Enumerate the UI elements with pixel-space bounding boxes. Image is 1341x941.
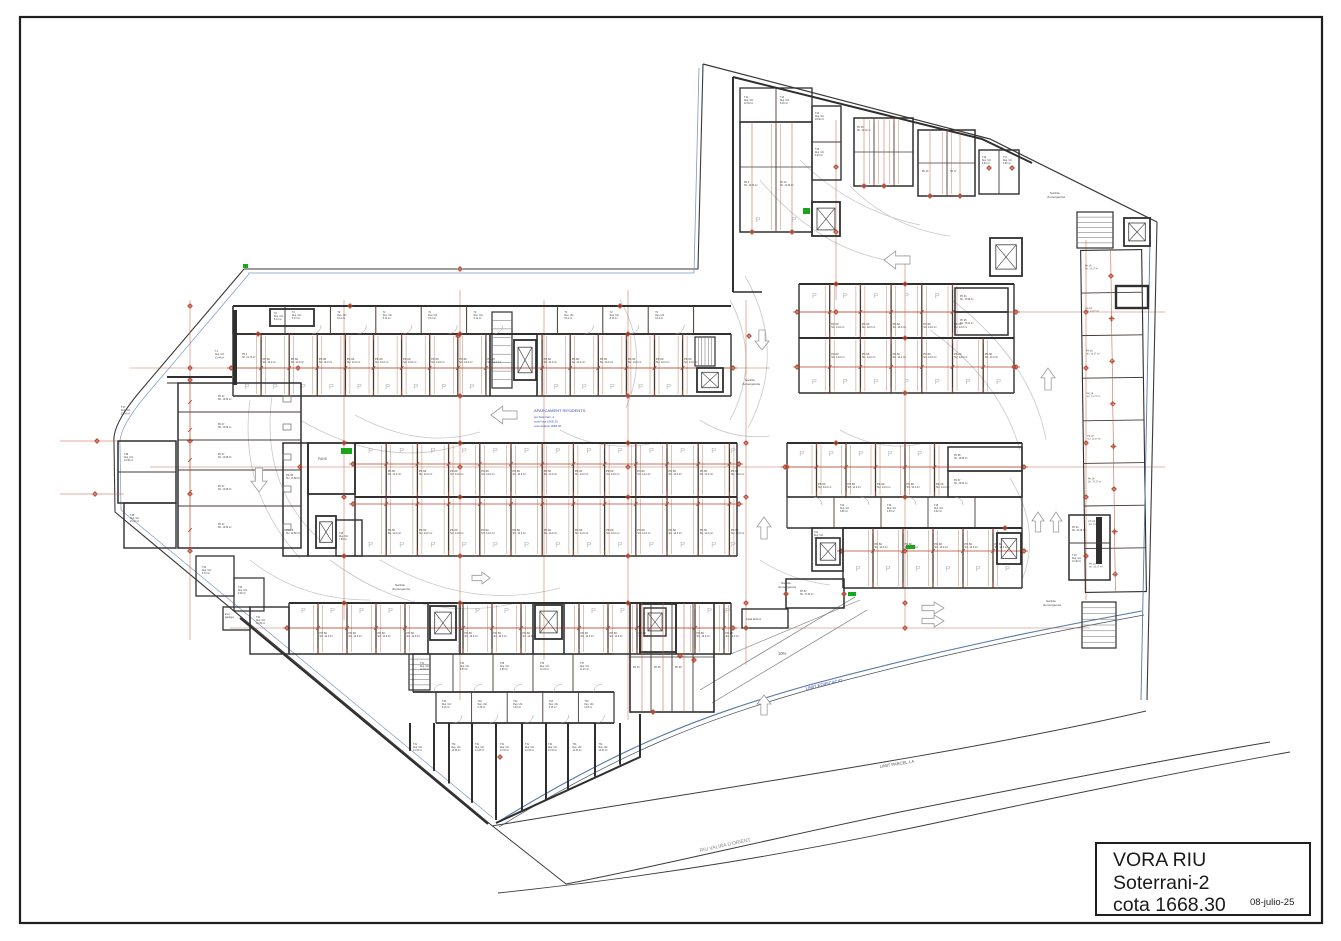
svg-text:trast.: trast. <box>225 613 230 616</box>
svg-text:P: P <box>554 382 559 391</box>
svg-text:8.14 m²: 8.14 m² <box>428 317 436 320</box>
svg-text:Rep. Util.: Rep. Util. <box>610 314 620 317</box>
svg-text:SU. 14.0 m²: SU. 14.0 m² <box>697 635 711 638</box>
svg-text:SU. 14.0 m²: SU. 14.0 m² <box>513 532 527 535</box>
svg-text:Rep. Util.: Rep. Util. <box>548 746 558 749</box>
svg-text:P: P <box>888 449 893 458</box>
svg-text:8.83 m²: 8.83 m² <box>460 668 468 671</box>
svg-text:P: P <box>462 540 467 549</box>
svg-text:SU. 21.73 m²: SU. 21.73 m² <box>242 356 256 359</box>
svg-text:SU. 12.80 m²: SU. 12.80 m² <box>286 532 300 535</box>
svg-text:PK.47: PK.47 <box>218 485 225 488</box>
svg-text:SU. 14.0 m²: SU. 14.0 m² <box>637 532 651 535</box>
svg-text:P: P <box>582 382 587 391</box>
svg-text:P: P <box>618 540 623 549</box>
svg-text:Rep. Util.: Rep. Util. <box>599 746 609 749</box>
svg-text:SU. 14.0 m²: SU. 14.0 m² <box>544 473 558 476</box>
svg-text:T31: T31 <box>548 743 553 746</box>
svg-text:SU. 13.08 m²: SU. 13.08 m² <box>218 426 232 429</box>
svg-text:P: P <box>680 446 685 455</box>
svg-text:PK.18: PK.18 <box>1086 349 1093 352</box>
svg-text:T36: T36 <box>540 662 545 665</box>
svg-text:18.60 m²: 18.60 m² <box>815 118 824 121</box>
svg-text:T44: T44 <box>202 566 207 569</box>
svg-text:SU. 14.0 m²: SU. 14.0 m² <box>656 361 670 364</box>
svg-text:Rep. Util.: Rep. Util. <box>780 99 790 102</box>
svg-text:8.14 m²: 8.14 m² <box>474 317 482 320</box>
svg-text:T31: T31 <box>452 743 457 746</box>
svg-text:SU. 14.0 m²: SU. 14.0 m² <box>403 361 417 364</box>
svg-text:Rep. Util.: Rep. Util. <box>549 703 559 706</box>
svg-text:SU. 14.0 m²: SU. 14.0 m² <box>481 532 495 535</box>
svg-text:SU. 14.0 m²: SU. 14.0 m² <box>877 486 891 489</box>
svg-text:Rep. Util.: Rep. Util. <box>525 746 535 749</box>
svg-text:T40: T40 <box>460 662 465 665</box>
svg-text:T33: T33 <box>584 700 589 703</box>
svg-text:T19: T19 <box>887 504 892 507</box>
svg-text:P: P <box>329 382 334 391</box>
svg-text:SU. 14.0 m²: SU. 14.0 m² <box>481 473 495 476</box>
svg-text:P: P <box>504 606 509 615</box>
svg-text:11.23 m²: 11.23 m² <box>580 668 589 671</box>
svg-text:T31: T31 <box>500 743 505 746</box>
svg-text:PK.18: PK.18 <box>1088 477 1095 480</box>
svg-text:SU. 17.32 m²: SU. 17.32 m² <box>800 593 814 596</box>
svg-text:SU. 13.17 m²: SU. 13.17 m² <box>1085 267 1099 270</box>
svg-text:8.14 m²: 8.14 m² <box>337 317 345 320</box>
svg-text:Rep. Util.: Rep. Util. <box>500 746 510 749</box>
svg-text:SU. 13.08 m²: SU. 13.08 m² <box>218 456 232 459</box>
svg-text:8.14 m²: 8.14 m² <box>655 317 663 320</box>
svg-text:Rep. Util.: Rep. Util. <box>428 314 438 317</box>
svg-text:Rep. Util.: Rep. Util. <box>215 353 225 356</box>
svg-text:PK.15: PK.15 <box>857 126 864 129</box>
svg-text:P: P <box>649 540 654 549</box>
svg-text:P: P <box>829 449 834 458</box>
svg-text:P: P <box>843 291 848 300</box>
svg-text:PK.1: PK.1 <box>242 353 248 356</box>
svg-text:T.19: T.19 <box>1072 554 1077 557</box>
svg-text:PK.18: PK.18 <box>1088 520 1095 523</box>
svg-text:P: P <box>843 377 848 386</box>
svg-text:P: P <box>755 215 760 224</box>
svg-text:T21: T21 <box>814 531 819 534</box>
svg-text:P: P <box>996 377 1001 386</box>
svg-text:P: P <box>858 449 863 458</box>
svg-text:Rep. Util.: Rep. Util. <box>452 746 462 749</box>
svg-text:SU. 15.96 m²: SU. 15.96 m² <box>960 298 974 301</box>
svg-text:PK.47: PK.47 <box>218 423 225 426</box>
svg-text:Rep. Util.: Rep. Util. <box>475 746 485 749</box>
svg-text:P: P <box>711 446 716 455</box>
svg-text:APARCAMENT RESIDENTS: APARCAMENT RESIDENTS <box>534 408 586 413</box>
svg-text:d'emergència: d'emergència <box>1043 603 1061 607</box>
svg-text:8.14 m²: 8.14 m² <box>383 317 391 320</box>
svg-text:SU. 14.0 m²: SU. 14.0 m² <box>818 486 832 489</box>
svg-text:P: P <box>430 446 435 455</box>
svg-text:PK.18: PK.18 <box>1087 435 1094 438</box>
svg-text:8.14 m²: 8.14 m² <box>292 317 300 320</box>
svg-text:14.33 m²: 14.33 m² <box>525 749 534 752</box>
svg-text:P: P <box>618 446 623 455</box>
svg-text:6.66 m²: 6.66 m² <box>1003 162 1011 165</box>
svg-text:14.33 m²: 14.33 m² <box>573 749 582 752</box>
svg-text:P: P <box>330 606 335 615</box>
svg-text:SU. 14.0 m²: SU. 14.0 m² <box>450 473 464 476</box>
svg-text:P: P <box>368 446 373 455</box>
svg-text:P: P <box>975 564 980 573</box>
svg-text:14.33 m²: 14.33 m² <box>452 749 461 752</box>
svg-text:T48: T48 <box>124 453 129 456</box>
svg-text:T31: T31 <box>413 743 418 746</box>
svg-text:P: P <box>475 606 480 615</box>
svg-text:SU. 14.0 m²: SU. 14.0 m² <box>610 635 624 638</box>
svg-text:Rep. Util.: Rep. Util. <box>339 535 349 538</box>
svg-text:PK.17: PK.17 <box>950 170 957 173</box>
svg-text:Rep. Util.: Rep. Util. <box>815 151 825 154</box>
svg-text:PK.67: PK.67 <box>954 479 961 482</box>
svg-text:P: P <box>945 564 950 573</box>
svg-text:6.16 m²: 6.16 m² <box>513 706 521 709</box>
svg-text:SU. 14.0 m²: SU. 14.0 m² <box>494 635 508 638</box>
svg-text:SU. 15.02 m²: SU. 15.02 m² <box>960 322 974 325</box>
svg-text:SU. 14.0 m²: SU. 14.0 m² <box>419 473 433 476</box>
svg-text:6.16 m²: 6.16 m² <box>584 706 592 709</box>
svg-text:SU. 14.0 m²: SU. 14.0 m² <box>637 473 651 476</box>
svg-text:14.33 m²: 14.33 m² <box>475 749 484 752</box>
svg-text:PK.66: PK.66 <box>954 454 961 457</box>
svg-text:SU. 14.0 m²: SU. 14.0 m² <box>319 361 333 364</box>
svg-text:PK.34: PK.34 <box>633 666 640 669</box>
svg-text:PK.18: PK.18 <box>1089 562 1096 565</box>
svg-text:6.88 m²: 6.88 m² <box>840 510 848 513</box>
svg-text:SU. 13.17 m²: SU. 13.17 m² <box>1088 480 1102 483</box>
svg-text:SU. 14.0 m²: SU. 14.0 m² <box>606 532 620 535</box>
svg-text:P: P <box>855 564 860 573</box>
svg-text:T20: T20 <box>840 504 845 507</box>
svg-text:T47: T47 <box>121 406 126 409</box>
svg-text:T15: T15 <box>815 148 820 151</box>
svg-text:SU. 14.0 m²: SU. 14.0 m² <box>731 473 745 476</box>
svg-text:P: P <box>915 564 920 573</box>
svg-text:SU. 14.0 m²: SU. 14.0 m² <box>628 361 642 364</box>
svg-text:6.88 m²: 6.88 m² <box>500 668 508 671</box>
svg-text:P: P <box>917 449 922 458</box>
svg-text:P: P <box>799 449 804 458</box>
svg-text:10.49 m²: 10.49 m² <box>256 622 265 625</box>
svg-text:Rep. Util.: Rep. Util. <box>256 619 266 622</box>
svg-text:d'emergència: d'emergència <box>778 585 796 589</box>
svg-text:cota 1668.30: cota 1668.30 <box>1113 894 1226 916</box>
svg-text:9.48 m²: 9.48 m² <box>238 592 246 595</box>
svg-text:Rep. Util.: Rep. Util. <box>1003 159 1013 162</box>
svg-text:Rep. Util.: Rep. Util. <box>540 665 550 668</box>
svg-text:PK.18: PK.18 <box>1085 307 1092 310</box>
svg-text:T31: T31 <box>525 743 530 746</box>
svg-text:P: P <box>524 446 529 455</box>
svg-text:T42: T42 <box>256 616 261 619</box>
svg-text:Rep. Util.: Rep. Util. <box>460 665 470 668</box>
svg-text:P: P <box>586 540 591 549</box>
svg-text:SU. 13.08 m²: SU. 13.08 m² <box>218 526 232 529</box>
svg-text:13.48 m²: 13.48 m² <box>1072 560 1081 563</box>
svg-text:P: P <box>591 606 596 615</box>
svg-text:P: P <box>441 382 446 391</box>
svg-text:6.16 m²: 6.16 m² <box>478 706 486 709</box>
svg-text:Rep. Util.: Rep. Util. <box>564 314 574 317</box>
svg-text:Rep. Util.: Rep. Util. <box>238 589 248 592</box>
svg-text:SU. 14.0 m²: SU. 14.0 m² <box>347 361 361 364</box>
svg-text:Rep. Util.: Rep. Util. <box>815 115 825 118</box>
svg-text:8.49 m²: 8.49 m² <box>780 102 788 105</box>
svg-text:P: P <box>649 446 654 455</box>
svg-text:cota acabat 1668.30: cota acabat 1668.30 <box>534 424 562 428</box>
svg-text:PANS: PANS <box>318 457 328 461</box>
svg-text:12.23 m²: 12.23 m² <box>540 668 549 671</box>
svg-text:14.33 m²: 14.33 m² <box>599 749 608 752</box>
svg-text:P: P <box>555 540 560 549</box>
svg-text:P: P <box>430 540 435 549</box>
svg-text:T41: T41 <box>420 662 425 665</box>
svg-text:SU. 13.88 m²: SU. 13.88 m² <box>286 477 300 480</box>
svg-text:SU. 14.0 m²: SU. 14.0 m² <box>923 326 937 329</box>
svg-text:SU. 13.11 m²: SU. 13.11 m² <box>857 129 871 132</box>
svg-text:Rep. Util.: Rep. Util. <box>442 703 452 706</box>
svg-text:SU. 14.0 m²: SU. 14.0 m² <box>419 532 433 535</box>
svg-text:Rep. Util.: Rep. Util. <box>121 409 131 412</box>
svg-text:P: P <box>725 606 730 615</box>
svg-text:14.33 m²: 14.33 m² <box>413 749 422 752</box>
svg-text:8.14 m²: 8.14 m² <box>564 317 572 320</box>
svg-text:pis Soterrani -2: pis Soterrani -2 <box>534 415 555 419</box>
svg-text:PK.52: PK.52 <box>800 590 807 593</box>
svg-text:T31: T31 <box>475 743 480 746</box>
svg-text:Rep. Util.: Rep. Util. <box>274 315 284 318</box>
svg-text:P: P <box>680 540 685 549</box>
svg-text:SU. 14.0 m²: SU. 14.0 m² <box>407 635 421 638</box>
svg-text:8.02 m²: 8.02 m² <box>934 510 942 513</box>
svg-text:Rep. Util.: Rep. Util. <box>337 314 347 317</box>
svg-text:20.04 m²: 20.04 m² <box>121 413 130 416</box>
svg-text:SU. 14.0 m²: SU. 14.0 m² <box>575 473 589 476</box>
svg-text:SU. 14.0 m²: SU. 14.0 m² <box>544 361 558 364</box>
svg-text:SU. 14.0 m²: SU. 14.0 m² <box>954 326 968 329</box>
svg-text:SU. 14.0 m²: SU. 14.0 m² <box>893 356 907 359</box>
svg-text:SU. 14.0 m²: SU. 14.0 m² <box>731 532 745 535</box>
svg-text:8.14 m²: 8.14 m² <box>610 317 618 320</box>
svg-text:Rep. Util.: Rep. Util. <box>934 507 944 510</box>
svg-text:SU. 14.0 m²: SU. 14.0 m² <box>831 356 845 359</box>
svg-text:13.38 m²: 13.38 m² <box>124 459 133 462</box>
svg-text:Rep. Util.: Rep. Util. <box>124 456 134 459</box>
svg-text:P: P <box>711 540 716 549</box>
svg-text:SU. 13.17 m²: SU. 13.17 m² <box>1089 565 1103 568</box>
svg-text:SU. 15.02 m²: SU. 15.02 m² <box>954 482 968 485</box>
svg-text:SU. 14.0 m²: SU. 14.0 m² <box>378 635 392 638</box>
svg-text:SU. 14.0 m²: SU. 14.0 m² <box>572 361 586 364</box>
svg-text:P: P <box>610 382 615 391</box>
svg-text:SU. 14.0 m²: SU. 14.0 m² <box>388 532 402 535</box>
svg-text:P: P <box>357 382 362 391</box>
svg-text:Rep. Util.: Rep. Util. <box>420 665 430 668</box>
svg-text:P: P <box>873 291 878 300</box>
svg-text:14.33 m²: 14.33 m² <box>548 749 557 752</box>
svg-text:Rep. Util.: Rep. Util. <box>130 517 140 520</box>
svg-text:Rep. Util.: Rep. Util. <box>474 314 484 317</box>
svg-text:VORA RIU: VORA RIU <box>1113 849 1206 871</box>
svg-text:P: P <box>399 446 404 455</box>
svg-text:T31: T31 <box>599 743 604 746</box>
svg-text:SU. 14.0 m²: SU. 14.0 m² <box>700 532 714 535</box>
svg-text:SU. 14.0 m²: SU. 14.0 m² <box>669 473 683 476</box>
svg-text:PK.18: PK.18 <box>1085 264 1092 267</box>
svg-text:PK.47: PK.47 <box>218 523 225 526</box>
svg-text:SU. 13.22 m²: SU. 13.22 m² <box>744 184 758 187</box>
svg-text:P: P <box>301 606 306 615</box>
svg-text:SU. 14.0 m²: SU. 14.0 m² <box>669 532 683 535</box>
svg-text:PK.9: PK.9 <box>744 181 750 184</box>
svg-text:10%: 10% <box>778 651 787 656</box>
svg-text:Rep. Util.: Rep. Util. <box>744 99 754 102</box>
svg-text:Rep. Util.: Rep. Util. <box>584 703 594 706</box>
svg-text:23.44 m²: 23.44 m² <box>215 357 224 360</box>
svg-text:P: P <box>904 291 909 300</box>
svg-text:T14: T14 <box>815 112 820 115</box>
svg-text:P: P <box>638 382 643 391</box>
svg-text:P: P <box>469 382 474 391</box>
svg-text:SU. 13.17 m²: SU. 13.17 m² <box>1087 438 1101 441</box>
svg-text:SU. 14.0 m²: SU. 14.0 m² <box>954 356 968 359</box>
svg-text:6.16 m²: 6.16 m² <box>549 706 557 709</box>
svg-text:Rep. Util.: Rep. Util. <box>513 703 523 706</box>
svg-text:PK.05: PK.05 <box>960 319 967 322</box>
svg-text:instal·lacions: instal·lacions <box>746 617 762 621</box>
svg-text:14.33 m²: 14.33 m² <box>500 749 509 752</box>
svg-text:P: P <box>812 377 817 386</box>
svg-text:Rep. Util.: Rep. Util. <box>478 703 488 706</box>
svg-text:P: P <box>873 377 878 386</box>
svg-text:SU. 14.0 m²: SU. 14.0 m² <box>600 361 614 364</box>
svg-text:Rep. Util.: Rep. Util. <box>413 746 423 749</box>
svg-text:T33: T33 <box>513 700 518 703</box>
svg-text:T43: T43 <box>238 586 243 589</box>
svg-text:P: P <box>368 540 373 549</box>
svg-text:23.41 m²: 23.41 m² <box>130 520 139 523</box>
svg-text:P: P <box>965 377 970 386</box>
svg-text:P: P <box>462 446 467 455</box>
svg-text:SU. 14.0 m²: SU. 14.0 m² <box>893 326 907 329</box>
svg-text:T45: T45 <box>130 514 135 517</box>
svg-text:P: P <box>1005 564 1010 573</box>
svg-text:SU. 14.0 m²: SU. 14.0 m² <box>907 486 921 489</box>
svg-text:P: P <box>524 540 529 549</box>
svg-text:7.32 m²: 7.32 m² <box>814 537 822 540</box>
svg-text:Rep. Util.: Rep. Util. <box>814 534 824 537</box>
svg-text:6.16 m²: 6.16 m² <box>442 706 450 709</box>
svg-text:T18: T18 <box>934 504 939 507</box>
svg-text:08-julio-25: 08-julio-25 <box>1250 897 1294 908</box>
svg-text:T16: T16 <box>982 156 987 159</box>
svg-text:SU. 14.0 m²: SU. 14.0 m² <box>431 361 445 364</box>
svg-text:Rep. Util.: Rep. Util. <box>573 746 583 749</box>
svg-text:d'emergència: d'emergència <box>392 587 410 591</box>
svg-text:Rep. Util.: Rep. Util. <box>840 507 850 510</box>
svg-text:SU. 14.0 m²: SU. 14.0 m² <box>581 635 595 638</box>
svg-text:Rep. Util.: Rep. Util. <box>655 314 665 317</box>
svg-text:7.60 m²: 7.60 m² <box>339 538 347 541</box>
svg-text:SU. 14.0 m²: SU. 14.0 m² <box>459 361 473 364</box>
svg-text:SU. 14.0 m²: SU. 14.0 m² <box>726 635 740 638</box>
svg-text:Rep. Util.: Rep. Util. <box>500 665 510 668</box>
svg-text:SU. 14.0 m²: SU. 14.0 m² <box>291 361 305 364</box>
svg-text:PK.16: PK.16 <box>922 170 929 173</box>
svg-text:SU. 14.0 m²: SU. 14.0 m² <box>544 532 558 535</box>
svg-text:PK.35: PK.35 <box>654 666 661 669</box>
svg-text:SU. 14.0 m²: SU. 14.0 m² <box>575 532 589 535</box>
svg-text:P: P <box>493 446 498 455</box>
svg-text:P: P <box>399 540 404 549</box>
svg-text:PK.24: PK.24 <box>1072 526 1079 529</box>
svg-text:22.62 m²: 22.62 m² <box>420 668 429 671</box>
svg-text:P: P <box>666 382 671 391</box>
svg-text:SU. 13.17 m²: SU. 13.17 m² <box>1086 352 1100 355</box>
svg-text:Rep. Util.: Rep. Util. <box>580 665 590 668</box>
svg-text:P: P <box>385 382 390 391</box>
svg-text:SU. 14.0 m²: SU. 14.0 m² <box>831 326 845 329</box>
svg-text:P: P <box>555 446 560 455</box>
svg-text:PK.10: PK.10 <box>780 181 787 184</box>
svg-text:SU. 20.25 m²: SU. 20.25 m² <box>1072 529 1086 532</box>
svg-text:Rep. Util.: Rep. Util. <box>982 159 992 162</box>
svg-text:P: P <box>493 540 498 549</box>
svg-text:Rep. Util.: Rep. Util. <box>1072 557 1082 560</box>
svg-text:T33: T33 <box>442 700 447 703</box>
svg-text:P: P <box>885 564 890 573</box>
svg-text:SU. 14.0 m²: SU. 14.0 m² <box>985 356 999 359</box>
svg-text:d'emergència: d'emergència <box>1047 195 1065 199</box>
svg-text:P: P <box>731 446 736 455</box>
svg-text:SU. 14.0 m²: SU. 14.0 m² <box>935 546 949 549</box>
svg-text:P: P <box>586 446 591 455</box>
svg-text:PK.47: PK.47 <box>218 395 225 398</box>
svg-text:SU. 14.0 m²: SU. 14.0 m² <box>349 635 363 638</box>
svg-text:SU. 14.0 m²: SU. 14.0 m² <box>862 356 876 359</box>
svg-text:SU. 14.0 m²: SU. 14.0 m² <box>875 546 889 549</box>
svg-text:Rep. Util.: Rep. Util. <box>292 314 302 317</box>
svg-text:SU. 14.0 m²: SU. 14.0 m² <box>465 635 479 638</box>
svg-text:T13: T13 <box>780 96 785 99</box>
svg-text:SU. 14.0 m²: SU. 14.0 m² <box>848 486 862 489</box>
svg-text:T12: T12 <box>744 96 749 99</box>
svg-text:cota lima 1668.30: cota lima 1668.30 <box>534 420 558 424</box>
svg-text:P: P <box>707 606 712 615</box>
svg-text:T46: T46 <box>339 532 344 535</box>
svg-text:Rep. Util.: Rep. Util. <box>383 314 393 317</box>
svg-text:T37: T37 <box>580 662 585 665</box>
svg-text:PK.18: PK.18 <box>1087 392 1094 395</box>
svg-text:d'emergència: d'emergència <box>742 382 760 386</box>
svg-text:garatges: garatges <box>225 616 235 619</box>
svg-text:SU. 14.0 m²: SU. 14.0 m² <box>513 473 527 476</box>
svg-text:T31: T31 <box>573 743 578 746</box>
svg-text:SU. 15.96 m²: SU. 15.96 m² <box>954 457 968 460</box>
svg-text:P: P <box>935 291 940 300</box>
svg-text:SU. 14.30 m²: SU. 14.30 m² <box>780 184 794 187</box>
svg-text:9.48 m²: 9.48 m² <box>815 154 823 157</box>
svg-text:P: P <box>935 377 940 386</box>
svg-text:SU. 14.0 m²: SU. 14.0 m² <box>263 361 277 364</box>
svg-text:Rep. Util.: Rep. Util. <box>202 569 212 572</box>
